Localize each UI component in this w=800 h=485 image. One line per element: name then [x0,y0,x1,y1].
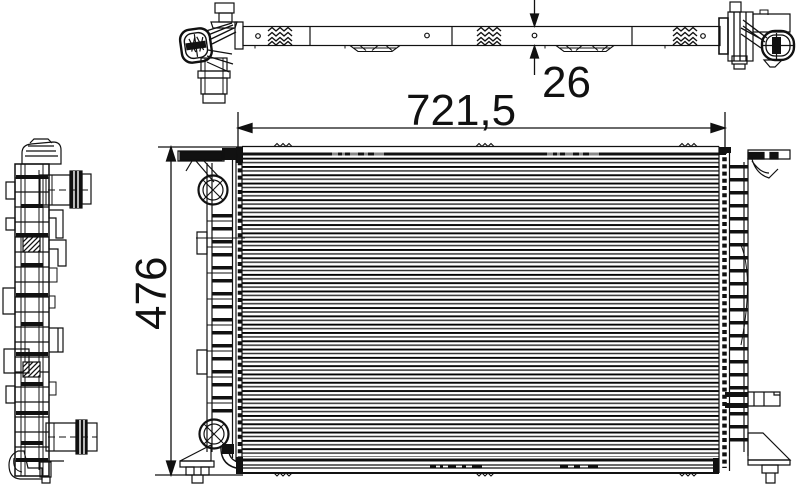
svg-text:476: 476 [127,257,176,330]
svg-text:26: 26 [542,58,591,107]
svg-text:721,5: 721,5 [406,86,516,135]
